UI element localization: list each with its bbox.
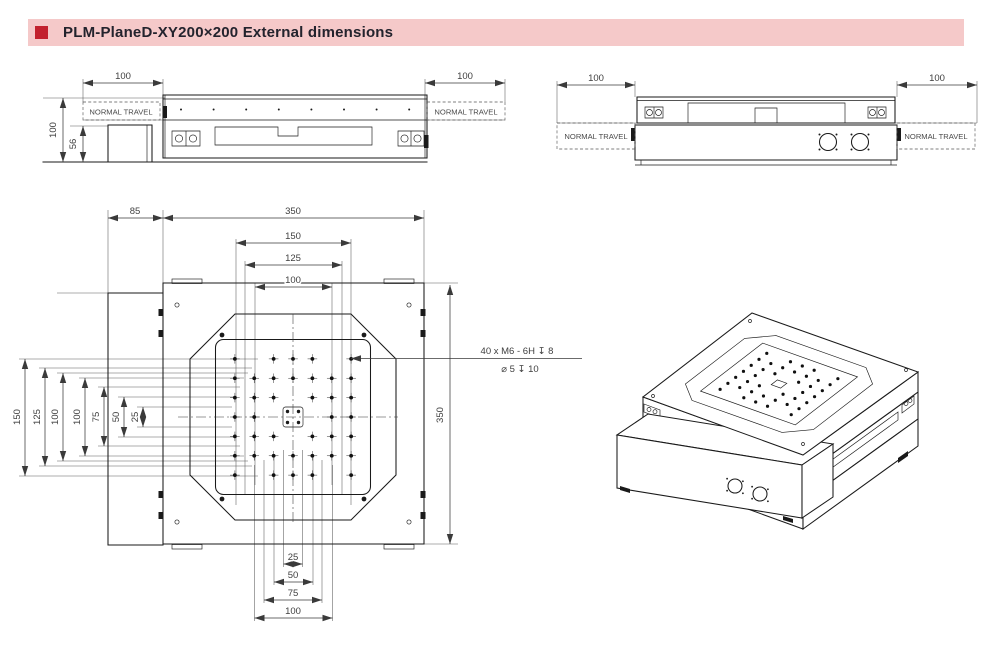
front-travel-label-right: NORMAL TRAVEL [434,108,497,117]
side-connector-circles [819,134,870,151]
plan-dim-left-100a: 100 [50,409,61,425]
plan-dim-bottom-100: 100 [285,606,301,617]
plan-dim-base-offset: 85 [130,206,141,217]
side-view-drawing: NORMAL TRAVEL NORMAL TRAVEL 100 100 [545,65,992,190]
accent-square-icon [35,26,48,39]
plan-dim-bottom-25: 25 [288,552,299,563]
plan-thread-note-line2: ⌀ 5 ↧ 10 [501,364,538,375]
page-title: PLM-PlaneD-XY200×200 External dimensions [63,24,393,41]
side-geometry [631,97,901,165]
plan-dim-bottom-75: 75 [288,588,299,599]
front-extension-lines [43,79,505,126]
plan-dim-width: 350 [285,206,301,217]
plan-dim-top-150: 150 [285,231,301,242]
front-view-drawing: NORMAL TRAVEL NORMAL TRAVEL 100 100 100 … [0,65,530,190]
isometric-view-drawing [600,280,992,580]
plan-dim-left-50: 50 [111,412,122,423]
plan-thread-note-line1: 40 x M6 - 6H ↧ 8 [481,346,554,357]
header-bar: PLM-PlaneD-XY200×200 External dimensions [28,19,964,46]
plan-dim-height: 350 [435,407,446,423]
front-travel-label-left: NORMAL TRAVEL [89,108,152,117]
plan-dim-bottom-50: 50 [288,570,299,581]
datasheet-page: PLM-PlaneD-XY200×200 External dimensions [0,0,992,651]
front-dim-travel-right: 100 [457,71,473,82]
plan-dim-top-100: 100 [285,275,301,286]
plan-dim-left-125: 125 [32,409,43,425]
plan-edge-tabs [159,279,426,549]
front-geometry [43,95,429,162]
plan-dim-left-100b: 100 [72,409,83,425]
front-dim-height: 100 [48,122,59,138]
plan-dim-left-25: 25 [130,412,141,423]
plan-dim-left-75: 75 [91,412,102,423]
plan-dim-top-125: 125 [285,253,301,264]
side-dimensions: 100 100 [557,73,977,85]
side-travel-label-left: NORMAL TRAVEL [564,132,627,141]
plan-view-drawing: 85 350 150 125 100 150 125 100 100 75 50… [0,195,600,651]
side-dim-travel-right: 100 [929,73,945,84]
front-dimensions: 100 100 100 56 [48,71,505,162]
front-top-screw-dots [180,109,410,111]
side-travel-zones: NORMAL TRAVEL NORMAL TRAVEL [557,123,975,149]
front-dim-motor-height: 56 [68,139,79,150]
side-extension-lines [557,81,977,123]
plan-dim-left-150: 150 [12,409,23,425]
front-dim-travel-left: 100 [115,71,131,82]
side-travel-label-right: NORMAL TRAVEL [904,132,967,141]
plan-geometry [108,279,426,549]
front-travel-zones: NORMAL TRAVEL NORMAL TRAVEL [83,102,505,120]
side-dim-travel-left: 100 [588,73,604,84]
